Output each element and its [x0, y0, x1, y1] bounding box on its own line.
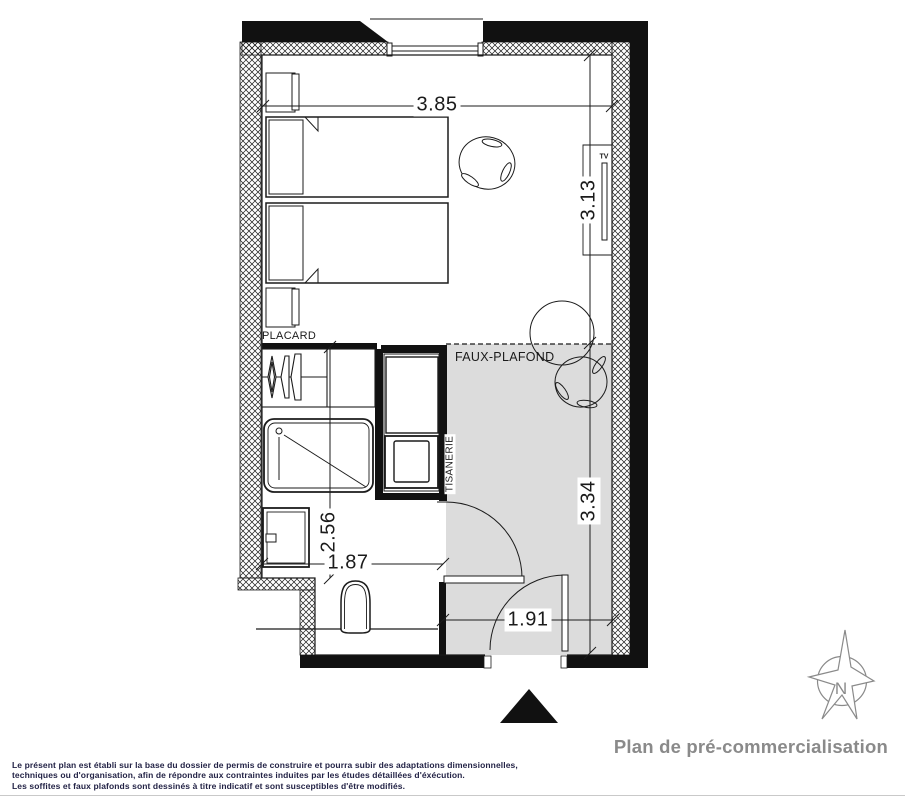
disclaimer-note: Le présent plan est établi sur la base d…	[12, 760, 518, 791]
label-kitchenette: TISANERIE	[445, 434, 456, 494]
dim-bath-height: 2.56	[318, 509, 341, 556]
plan-drawing	[0, 0, 905, 800]
dim-right-upper: 3.13	[578, 177, 601, 224]
dim-bath-width: 1.87	[325, 552, 372, 575]
shower	[264, 419, 373, 492]
compass-north-letter: N	[835, 679, 847, 699]
entrance-arrow-icon	[500, 689, 558, 723]
armchair	[453, 131, 521, 196]
toilet	[341, 581, 370, 633]
washbasin	[263, 508, 309, 567]
kitchenette	[384, 354, 439, 491]
window	[370, 19, 483, 56]
closet	[262, 349, 375, 407]
floor-plan-page: 3.85 3.13 3.34 2.56 1.87 1.91 PLACARD FA…	[0, 0, 905, 800]
dim-right-lower: 3.34	[578, 478, 601, 525]
dim-top-width: 3.85	[414, 94, 461, 117]
label-false-ceiling: FAUX-PLAFOND	[455, 350, 554, 364]
disclaimer-line: Le présent plan est établi sur la base d…	[12, 760, 518, 770]
dim-hall-width: 1.91	[505, 609, 552, 632]
disclaimer-line: Les soffites et faux plafonds sont dessi…	[12, 781, 518, 791]
page-bottom-rule	[0, 795, 905, 796]
disclaimer-line: techniques ou d'organisation, afin de ré…	[12, 770, 518, 780]
label-closet: PLACARD	[262, 330, 316, 342]
label-tv: TV	[600, 154, 609, 161]
north-compass-icon	[809, 630, 874, 719]
plan-title: Plan de pré-commercialisation	[614, 736, 888, 758]
